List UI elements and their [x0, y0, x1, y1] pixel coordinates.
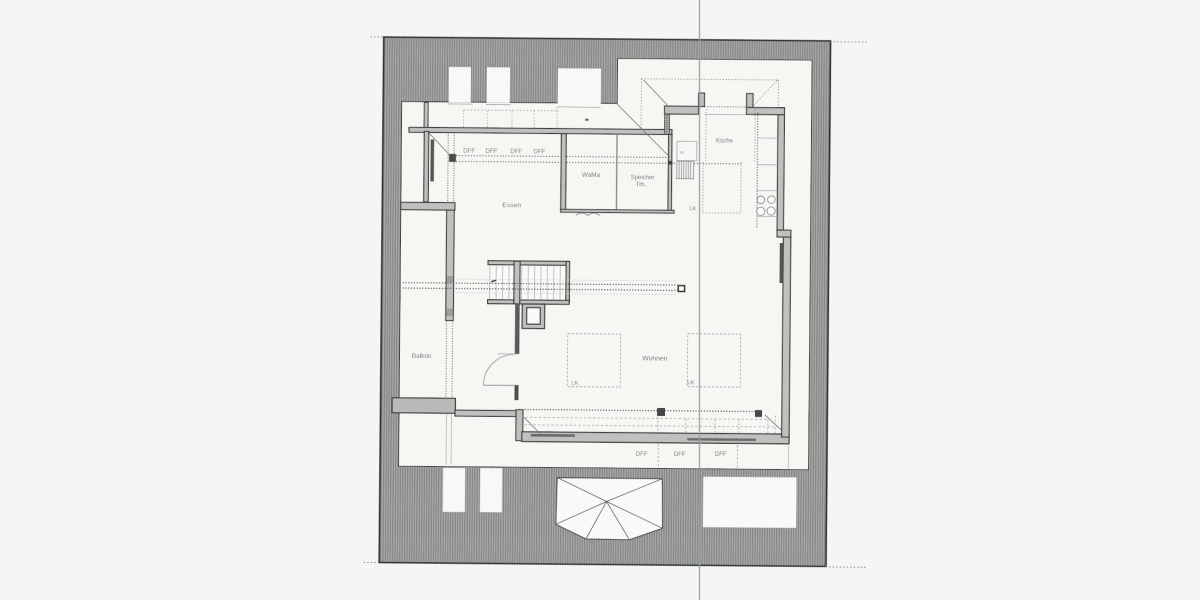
svg-text:DFF: DFF — [533, 148, 545, 155]
svg-text:Wohnen: Wohnen — [642, 355, 667, 362]
svg-text:DFF: DFF — [715, 451, 727, 458]
svg-text:DFF: DFF — [485, 148, 497, 155]
svg-text:DFF: DFF — [510, 148, 522, 155]
svg-text:DFF: DFF — [636, 451, 648, 458]
svg-text:Essen: Essen — [502, 202, 521, 209]
svg-text:WaMa: WaMa — [582, 172, 601, 179]
svg-text:LK: LK — [687, 380, 694, 386]
svg-text:LK: LK — [689, 206, 696, 212]
svg-text:DFF: DFF — [463, 148, 475, 155]
svg-text:DFF: DFF — [674, 451, 686, 458]
svg-text:th: th — [680, 150, 683, 155]
svg-text:Speicher: Speicher — [631, 175, 655, 181]
svg-text:Trh.: Trh. — [636, 182, 647, 188]
svg-text:Balkon: Balkon — [412, 353, 432, 360]
svg-text:Küche: Küche — [716, 138, 734, 144]
svg-text:LK: LK — [571, 381, 578, 387]
